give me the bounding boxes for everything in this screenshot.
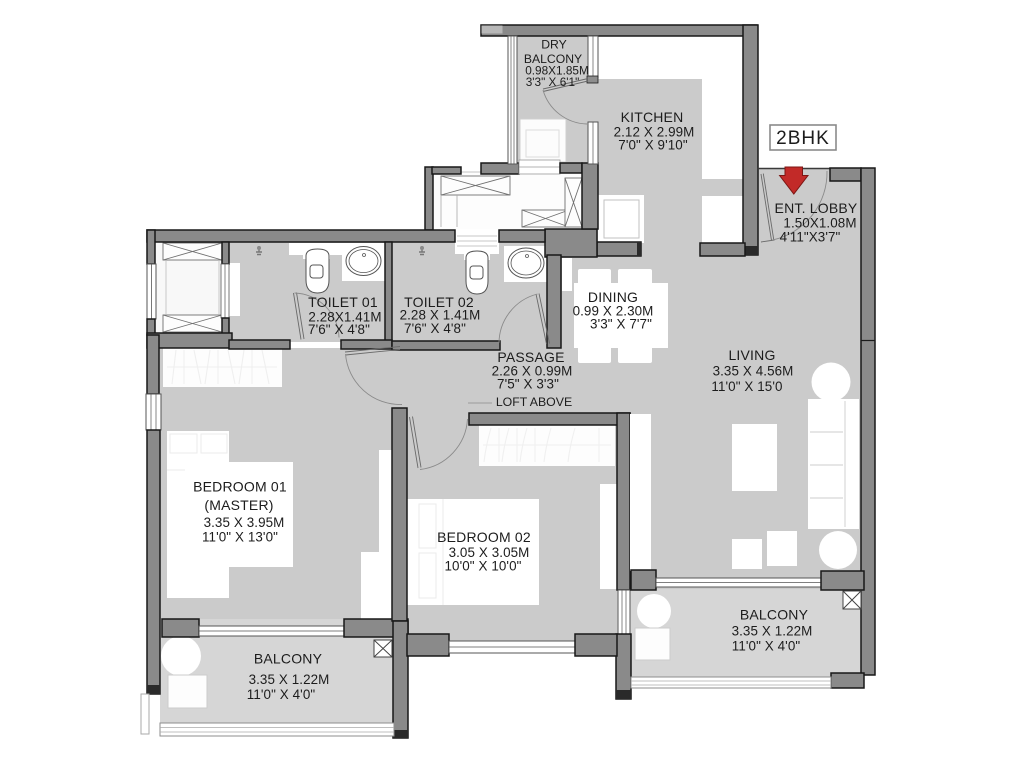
svg-text:1.50X1.08M: 1.50X1.08M — [783, 216, 856, 231]
svg-text:DRY: DRY — [541, 38, 567, 52]
svg-text:11'0" X 4'0": 11'0" X 4'0" — [732, 639, 801, 654]
svg-text:BALCONY: BALCONY — [740, 607, 809, 623]
svg-text:(MASTER): (MASTER) — [204, 497, 273, 513]
svg-text:TOILET 01: TOILET 01 — [308, 294, 378, 310]
svg-text:3.35 X 1.22M: 3.35 X 1.22M — [249, 672, 330, 687]
svg-text:11'0" X 13'0": 11'0" X 13'0" — [202, 530, 278, 545]
svg-text:KITCHEN: KITCHEN — [621, 109, 684, 125]
svg-text:3.35 X 3.95M: 3.35 X 3.95M — [204, 515, 285, 530]
svg-text:3'3" X 6'1": 3'3" X 6'1" — [526, 75, 580, 89]
svg-text:ENT. LOBBY: ENT. LOBBY — [775, 200, 858, 216]
svg-text:7'5" X 3'3": 7'5" X 3'3" — [497, 377, 559, 392]
svg-text:3'3" X 7'7": 3'3" X 7'7" — [590, 317, 652, 332]
svg-text:10'0" X 10'0": 10'0" X 10'0" — [445, 559, 522, 574]
svg-text:3.35 X 1.22M: 3.35 X 1.22M — [732, 624, 813, 639]
svg-text:7'6" X 4'8": 7'6" X 4'8" — [308, 322, 370, 337]
svg-text:4'11"X3'7": 4'11"X3'7" — [780, 230, 841, 245]
svg-text:BEDROOM 01: BEDROOM 01 — [193, 479, 287, 495]
svg-text:11'0" X 15'0: 11'0" X 15'0 — [711, 379, 782, 394]
svg-text:11'0" X 4'0": 11'0" X 4'0" — [247, 687, 316, 702]
svg-text:BALCONY: BALCONY — [254, 651, 323, 667]
svg-text:2BHK: 2BHK — [776, 128, 830, 149]
svg-text:LOFT ABOVE: LOFT ABOVE — [496, 395, 572, 409]
svg-text:BEDROOM 02: BEDROOM 02 — [437, 529, 531, 545]
svg-text:LIVING: LIVING — [728, 347, 775, 363]
svg-text:7'6" X 4'8": 7'6" X 4'8" — [404, 321, 466, 336]
svg-text:7'0" X 9'10": 7'0" X 9'10" — [618, 138, 688, 153]
svg-text:3.35 X 4.56M: 3.35 X 4.56M — [713, 364, 794, 379]
